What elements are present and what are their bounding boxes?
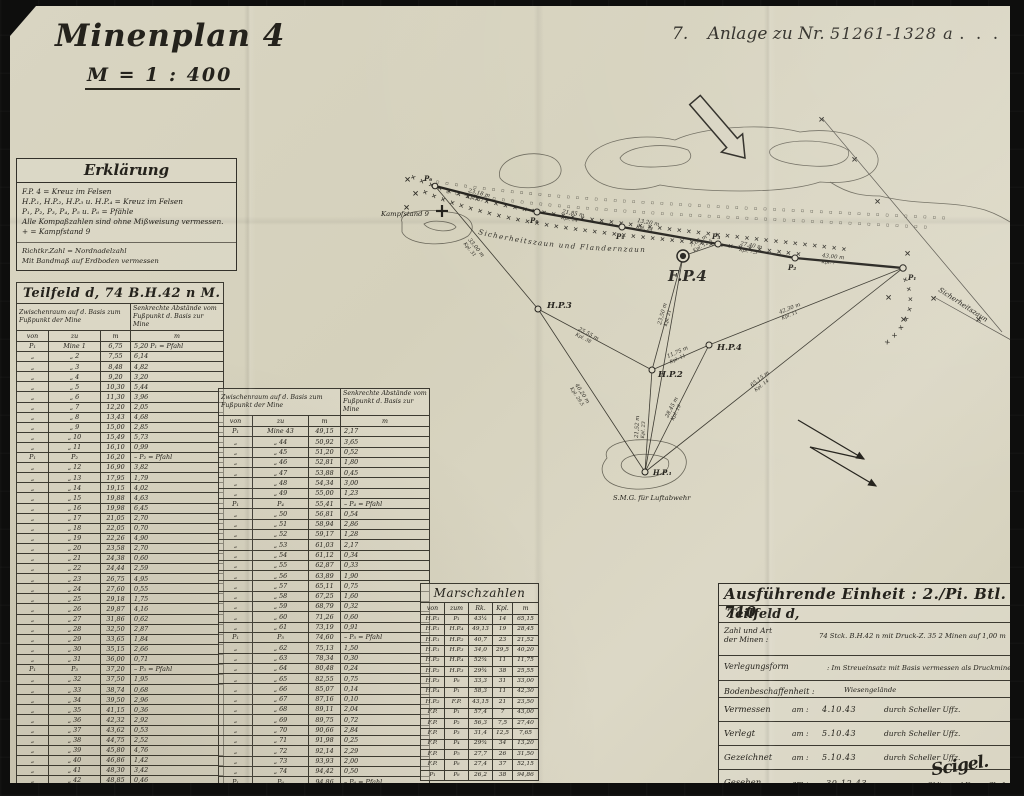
cell-dist: 29,87 xyxy=(101,604,131,614)
cell-von: F.P. xyxy=(421,750,445,760)
table-row: „ „ 5 10,30 5,44 xyxy=(17,382,224,392)
cell-von: „ xyxy=(219,725,253,735)
cell-von: H.P.₄ xyxy=(421,687,445,697)
cell-dist: 85,07 xyxy=(309,684,341,694)
table1-head-right: Senkrechte Abstände vom Fußpunkt d. Basi… xyxy=(131,304,224,331)
table-row: „ „ 19 22,26 4,90 xyxy=(17,533,224,543)
cell-dist: 93,93 xyxy=(309,756,341,766)
cell-zu: „ 20 xyxy=(49,543,101,553)
cell-rk: 43,15 xyxy=(469,698,493,708)
table-row: „ „ 59 68,79 0,32 xyxy=(219,602,430,612)
cell-dist: 22,26 xyxy=(101,533,131,543)
cell-von: P₁ xyxy=(219,777,253,783)
table-row: „ „ 67 87,16 0,10 xyxy=(219,694,430,704)
cell-m: 28,45 xyxy=(513,625,539,635)
col-m: m xyxy=(513,603,539,615)
legend-line: Alle Kompaßzahlen sind ohne Mißweisung v… xyxy=(22,217,232,227)
cell-dist: 19,88 xyxy=(101,493,131,503)
log-date: 4.10.43 xyxy=(822,705,884,714)
cell-dist: 37,20 xyxy=(101,665,131,675)
table-row: „ „ 16 19,98 6,45 xyxy=(17,503,224,513)
table-row: „ „ 35 41,15 0,36 xyxy=(17,705,224,715)
cell-m: 23,50 xyxy=(513,698,539,708)
cell-offset: 1,23 xyxy=(341,488,430,498)
cell-offset: 0,33 xyxy=(341,560,430,570)
cell-zum: H.P.₃ xyxy=(445,646,469,656)
cell-zu: „ 55 xyxy=(253,560,309,570)
table-row: „ „ 56 63,89 1,90 xyxy=(219,571,430,581)
table-row: „ „ 3 8,48 4,82 xyxy=(17,362,224,372)
map-scale: M = 1 : 400 xyxy=(85,64,240,90)
cell-dist: 43,62 xyxy=(101,725,131,735)
cell-offset: 2,00 xyxy=(341,756,430,766)
table-row: P₁ P₂ 16,20 – P₂ = Pfahl xyxy=(17,453,224,463)
log-am: am : xyxy=(792,753,822,762)
table-row: „ „ 58 67,25 1,60 xyxy=(219,591,430,601)
mine-table-2: Zwischenraum auf d. Basis zum Fußpunkt d… xyxy=(218,388,430,783)
cell-offset: 0,52 xyxy=(341,447,430,457)
cell-von: „ xyxy=(17,695,49,705)
mines-value: 74 Stck. B.H.42 n mit Druck-Z. 35 2 Mine… xyxy=(819,632,1006,640)
cell-offset: 1,79 xyxy=(131,473,224,483)
col-zum: zum xyxy=(445,603,469,615)
cell-zu: „ 15 xyxy=(49,493,101,503)
meas: 21,52 m xyxy=(634,416,641,440)
cell-dist: 44,75 xyxy=(101,735,131,745)
cell-dist: 51,20 xyxy=(309,447,341,457)
hp1-label: H.P.₁ xyxy=(652,468,672,477)
col-zu: zu xyxy=(49,331,101,342)
p4-label: P₄ xyxy=(615,232,624,241)
table-row: „ „ 7 12,20 2,05 xyxy=(17,402,224,412)
cell-von: „ xyxy=(17,584,49,594)
cell-zu: „ 26 xyxy=(49,604,101,614)
cell-zu: Mine 1 xyxy=(49,342,101,352)
log-am: am : xyxy=(792,705,822,714)
cell-m: 7,65 xyxy=(513,729,539,739)
cell-offset: 0,91 xyxy=(341,622,430,632)
cell-zum: H.P.₂ xyxy=(445,635,469,645)
cell-zum: P₁ xyxy=(445,615,469,625)
cell-zu: „ 14 xyxy=(49,483,101,493)
seen-row: Gesehen am : 30.12.43 Scigel. Obltn. und… xyxy=(719,770,1010,783)
cell-zu: „ 23 xyxy=(49,574,101,584)
table-row: „ „ 32 37,50 1,95 xyxy=(17,675,224,685)
cell-zu: „ 69 xyxy=(253,715,309,725)
cell-offset: 3,96 xyxy=(131,392,224,402)
cell-zu: „ 38 xyxy=(49,735,101,745)
cell-dist: 46,86 xyxy=(101,755,131,765)
cell-zu: „ 25 xyxy=(49,594,101,604)
table-row: „ „ 28 32,50 2,87 xyxy=(17,624,224,634)
cell-offset: 2,96 xyxy=(131,695,224,705)
log-date: 5.10.43 xyxy=(822,753,884,762)
cell-dist: 45,80 xyxy=(101,745,131,755)
cell-von: „ xyxy=(17,402,49,412)
cell-zu: „ 5 xyxy=(49,382,101,392)
fence-x: × xyxy=(874,197,881,207)
cell-von: „ xyxy=(219,591,253,601)
cell-rk: 33,3 xyxy=(469,677,493,687)
cell-von: „ xyxy=(219,705,253,715)
annex-label: Anlage zu Nr. xyxy=(708,24,825,44)
cell-dist: 61,03 xyxy=(309,540,341,550)
cell-m: 42,30 xyxy=(513,687,539,697)
cell-zum: P₆ xyxy=(445,770,469,780)
cell-dist: 78,34 xyxy=(309,653,341,663)
log-label: Vermessen xyxy=(724,705,792,715)
cell-von: „ xyxy=(17,513,49,523)
cell-zu: „ 40 xyxy=(49,755,101,765)
table-row: „ „ 65 82,55 0,75 xyxy=(219,674,430,684)
table2-head-left: Zwischenraum auf d. Basis zum Fußpunkt d… xyxy=(219,389,341,416)
cell-zu: „ 8 xyxy=(49,412,101,422)
fence-x: × xyxy=(900,315,907,325)
cell-zu: „ 22 xyxy=(49,564,101,574)
cell-kpl: 29,5 xyxy=(493,646,513,656)
cell-von: P₁ xyxy=(17,342,49,352)
cell-dist: 91,98 xyxy=(309,735,341,745)
form-value: : Im Streueinsatz mit Basis vermessen al… xyxy=(827,664,1010,672)
cell-rk: 57,4 xyxy=(469,708,493,718)
cell-zu: „ 67 xyxy=(253,694,309,704)
cell-zu: P₆ xyxy=(253,777,309,783)
table-row: „ „ 45 51,20 0,52 xyxy=(219,447,430,457)
cell-zu: „ 41 xyxy=(49,765,101,775)
fence-marks-south: ×××××××× xyxy=(879,276,914,350)
table-row: „ „ 61 73,19 0,91 xyxy=(219,622,430,632)
cell-offset: 3,65 xyxy=(341,437,430,447)
cell-offset: 0,55 xyxy=(131,584,224,594)
cell-offset: 1,84 xyxy=(131,634,224,644)
cell-zu: „ 37 xyxy=(49,725,101,735)
table-row: H.P.₃ P₆ 33,3 31 33,00 xyxy=(421,677,539,687)
cell-dist: 7,55 xyxy=(101,352,131,362)
cell-zu: „ 34 xyxy=(49,695,101,705)
cell-dist: 50,92 xyxy=(309,437,341,447)
cell-zum: F.P. xyxy=(445,698,469,708)
cell-m: 21,52 xyxy=(513,635,539,645)
cell-von: P₁ xyxy=(17,453,49,463)
cell-von: „ xyxy=(219,560,253,570)
cell-zum: P₁ xyxy=(445,687,469,697)
cell-von: H.P.₃ xyxy=(421,677,445,687)
cell-zu: „ 54 xyxy=(253,550,309,560)
cell-offset: 1,80 xyxy=(341,457,430,467)
cell-offset: 1,90 xyxy=(341,571,430,581)
cell-m: 27,40 xyxy=(513,718,539,728)
fp4-label: F.P.4 xyxy=(667,267,707,285)
table-row: „ „ 11 16,10 0,99 xyxy=(17,442,224,452)
col-von: von xyxy=(17,331,49,342)
cell-offset: 4,95 xyxy=(131,574,224,584)
table-row: H.P.₁ H.P.₂ 40,7 23 21,52 xyxy=(421,635,539,645)
table-row: P₁ P₆ 26,2 38 94,86 xyxy=(421,770,539,780)
cell-von: „ xyxy=(219,674,253,684)
table2-head-right: Senkrechte Abstände vom Fußpunkt d. Basi… xyxy=(341,389,430,416)
cell-zum: P₁ xyxy=(445,708,469,718)
cell-kpl: 38 xyxy=(493,770,513,780)
cell-dist: 32,50 xyxy=(101,624,131,634)
table-row: „ „ 10 15,49 5,73 xyxy=(17,432,224,442)
cell-dist: 16,20 xyxy=(101,453,131,463)
cell-zu: „ 56 xyxy=(253,571,309,581)
cell-von: „ xyxy=(17,634,49,644)
cell-dist: 6,75 xyxy=(101,342,131,352)
table-row: F.P. P₆ 27,4 37 52,15 xyxy=(421,760,539,770)
cell-von: H.P.₁ xyxy=(421,615,445,625)
table-row: „ „ 55 62,87 0,33 xyxy=(219,560,430,570)
table-row: „ „ 27 31,86 0,62 xyxy=(17,614,224,624)
table-row: „ „ 47 53,88 0,45 xyxy=(219,468,430,478)
cell-zu: „ 11 xyxy=(49,442,101,452)
annex-value: 51261-1328 a xyxy=(830,24,954,43)
table-row: „ „ 8 13,43 4,68 xyxy=(17,412,224,422)
cell-m: 25,55 xyxy=(513,666,539,676)
table-row: „ „ 62 75,13 1,50 xyxy=(219,643,430,653)
cell-von: „ xyxy=(219,488,253,498)
cell-dist: 16,90 xyxy=(101,463,131,473)
table-row: „ „ 74 94,42 0,50 xyxy=(219,766,430,776)
cell-offset: 0,72 xyxy=(341,715,430,725)
cell-von: „ xyxy=(17,533,49,543)
cell-dist: 11,30 xyxy=(101,392,131,402)
cell-offset: 0,24 xyxy=(341,663,430,673)
log-row: Vermessen am : 4.10.43 durch Scheller Uf… xyxy=(719,698,1010,722)
table-row: „ „ 38 44,75 2,52 xyxy=(17,735,224,745)
cell-zu: „ 6 xyxy=(49,392,101,402)
cell-dist: 37,50 xyxy=(101,675,131,685)
cell-kpl: 11 xyxy=(493,656,513,666)
cell-von: H.P.₂ xyxy=(421,666,445,676)
cell-von: „ xyxy=(219,571,253,581)
cell-von: „ xyxy=(17,725,49,735)
table-row: P₁ Mine 43 49,15 2,17 xyxy=(219,427,430,437)
cell-zu: „ 39 xyxy=(49,745,101,755)
cell-kpl: 26 xyxy=(493,750,513,760)
cell-von: „ xyxy=(219,478,253,488)
cell-offset: 0,60 xyxy=(341,612,430,622)
cell-dist: 29,18 xyxy=(101,594,131,604)
cell-von: „ xyxy=(219,509,253,519)
mine-table-1: Teilfeld d, 74 B.H.42 n M. Zwischenraum … xyxy=(16,282,224,783)
form-row: Verlegungsform : Im Streueinsatz mit Bas… xyxy=(719,656,1010,681)
cell-zum: P₂ xyxy=(445,718,469,728)
cell-von: „ xyxy=(17,776,49,783)
cell-offset: – P₃ = Pfahl xyxy=(131,665,224,675)
cell-offset: 2,59 xyxy=(131,564,224,574)
table-row: „ „ 52 59,17 1,28 xyxy=(219,529,430,539)
cell-von: „ xyxy=(219,622,253,632)
cell-dist: 27,60 xyxy=(101,584,131,594)
table-row: „ „ 14 19,15 4,02 xyxy=(17,483,224,493)
cell-von: „ xyxy=(219,653,253,663)
table-row: „ „ 40 46,86 1,42 xyxy=(17,755,224,765)
cell-von: H.P.₁ xyxy=(421,625,445,635)
smg-label: S.M.G. für Luftabwehr xyxy=(613,494,691,502)
cell-offset: 1,95 xyxy=(131,675,224,685)
cell-dist: 55,00 xyxy=(309,488,341,498)
cell-von: „ xyxy=(17,463,49,473)
cell-rk: 58,3 xyxy=(469,687,493,697)
cell-zu: „ 28 xyxy=(49,624,101,634)
cell-zum: P₄ xyxy=(445,739,469,749)
cell-offset: – P₅ = Pfahl xyxy=(341,632,430,642)
cell-zu: „ 65 xyxy=(253,674,309,684)
table-row: „ „ 57 65,11 0,75 xyxy=(219,581,430,591)
cell-dist: 19,98 xyxy=(101,503,131,513)
cell-von: „ xyxy=(17,483,49,493)
cell-dist: 17,95 xyxy=(101,473,131,483)
cell-von: „ xyxy=(17,432,49,442)
p5-label: P₅ xyxy=(529,216,538,225)
cell-offset: 3,42 xyxy=(131,765,224,775)
cell-rk: 27,4 xyxy=(469,760,493,770)
cell-dist: 90,66 xyxy=(309,725,341,735)
hp2-label: H.P.2 xyxy=(657,370,683,380)
cell-von: „ xyxy=(17,523,49,533)
cell-dist: 74,60 xyxy=(309,632,341,642)
cell-zu: „ 58 xyxy=(253,591,309,601)
cell-dist: 15,49 xyxy=(101,432,131,442)
cell-von: „ xyxy=(17,644,49,654)
cell-zu: „ 66 xyxy=(253,684,309,694)
cell-dist: 12,20 xyxy=(101,402,131,412)
cell-dist: 24,44 xyxy=(101,564,131,574)
cell-zum: P₃ xyxy=(445,729,469,739)
cell-dist: 41,15 xyxy=(101,705,131,715)
cell-dist: 15,00 xyxy=(101,422,131,432)
table-row: „ „ 26 29,87 4,16 xyxy=(17,604,224,614)
cell-zu: Mine 43 xyxy=(253,427,309,437)
cell-von: P₁ xyxy=(17,665,49,675)
direction-arrow xyxy=(690,95,745,158)
table-row: P₁ P₄ 55,41 – P₄ = Pfahl xyxy=(219,499,430,509)
cell-m: 43,00 xyxy=(513,708,539,718)
cell-zu: „ 9 xyxy=(49,422,101,432)
col-m: m xyxy=(309,416,341,427)
fence-x: × xyxy=(818,115,825,125)
table-row: H.P.₁ P₁ 43¼ 14 65,15 xyxy=(421,615,539,625)
cell-von: „ xyxy=(17,564,49,574)
cell-zu: „ 12 xyxy=(49,463,101,473)
cell-dist: 53,88 xyxy=(309,468,341,478)
cell-offset: – P₂ = Pfahl xyxy=(131,453,224,463)
hp4-label: H.P.4 xyxy=(716,343,742,353)
cell-zum: P₆ xyxy=(445,677,469,687)
fence-x: × xyxy=(412,189,419,199)
cell-dist: 38,74 xyxy=(101,685,131,695)
cell-offset: 5,44 xyxy=(131,382,224,392)
cell-dist: 36,00 xyxy=(101,654,131,664)
kampfstand-label: Kampfstand 9 xyxy=(380,210,430,218)
unit-info-panel: Ausführende Einheit : 2./Pi. Btl. 710 Te… xyxy=(718,583,1010,783)
table-row: „ „ 39 45,80 4,76 xyxy=(17,745,224,755)
cell-offset: 0,36 xyxy=(131,705,224,715)
cell-dist: 58,94 xyxy=(309,519,341,529)
cell-m: 33,00 xyxy=(513,677,539,687)
cell-zu: „ 57 xyxy=(253,581,309,591)
cell-offset: 1,28 xyxy=(341,529,430,539)
terrain-contours xyxy=(402,127,1010,489)
cell-zu: „ 48 xyxy=(253,478,309,488)
table-row: „ „ 18 22,05 0,70 xyxy=(17,523,224,533)
cell-von: „ xyxy=(219,581,253,591)
table-row: F.P. P₂ 56,3 7,5 27,40 xyxy=(421,718,539,728)
cell-dist: 33,65 xyxy=(101,634,131,644)
cell-offset: 1,42 xyxy=(131,755,224,765)
cell-offset: 0,34 xyxy=(341,550,430,560)
cell-zu: „ 64 xyxy=(253,663,309,673)
cell-zu: „ 16 xyxy=(49,503,101,513)
cell-offset: 3,00 xyxy=(341,478,430,488)
cell-dist: 19,15 xyxy=(101,483,131,493)
table-row: „ „ 42 48,85 0,46 xyxy=(17,776,224,783)
table-row: „ „ 69 89,75 0,72 xyxy=(219,715,430,725)
cell-offset: 4,82 xyxy=(131,362,224,372)
cell-offset: 3,82 xyxy=(131,463,224,473)
cell-offset: 6,14 xyxy=(131,352,224,362)
table-row: „ „ 64 80,48 0,24 xyxy=(219,663,430,673)
table-row: „ „ 22 24,44 2,59 xyxy=(17,564,224,574)
cell-m: 94,86 xyxy=(513,770,539,780)
cell-zu: „ 35 xyxy=(49,705,101,715)
table-row: „ „ 9 15,00 2,85 xyxy=(17,422,224,432)
cell-von: F.P. xyxy=(421,729,445,739)
cell-von: „ xyxy=(219,694,253,704)
legend-lines: F.P. 4 = Kreuz im FelsenH.P.₁, H.P.₂, H.… xyxy=(17,183,236,239)
cell-zu: „ 68 xyxy=(253,705,309,715)
cell-dist: 55,41 xyxy=(309,499,341,509)
table-row: F.P. P₄ 29¾ 34 13,20 xyxy=(421,739,539,749)
cell-kpl: 31 xyxy=(493,677,513,687)
cell-von: „ xyxy=(17,372,49,382)
cell-zu: „ 62 xyxy=(253,643,309,653)
cell-rk: 40,7 xyxy=(469,635,493,645)
cell-offset: 2,05 xyxy=(131,402,224,412)
cell-rk: 29¾ xyxy=(469,739,493,749)
cell-offset: 2,84 xyxy=(341,725,430,735)
cell-zu: P₅ xyxy=(253,632,309,642)
table-row: „ „ 31 36,00 0,71 xyxy=(17,654,224,664)
cell-von: „ xyxy=(219,684,253,694)
cell-kpl: 34 xyxy=(493,739,513,749)
cell-offset: 4,90 xyxy=(131,533,224,543)
cell-m: 52,15 xyxy=(513,760,539,770)
col-rk: Rk. xyxy=(469,603,493,615)
document-paper: Minenplan 4 M = 1 : 400 7. Anlage zu Nr.… xyxy=(10,6,1010,783)
cell-von: H.P.₂ xyxy=(421,656,445,666)
cell-von: „ xyxy=(17,473,49,483)
cell-dist: 63,89 xyxy=(309,571,341,581)
table-row: „ „ 50 56,81 0,54 xyxy=(219,509,430,519)
table-row: „ „ 15 19,88 4,63 xyxy=(17,493,224,503)
cell-zu: „ 70 xyxy=(253,725,309,735)
cell-zu: „ 30 xyxy=(49,644,101,654)
cell-von: „ xyxy=(17,745,49,755)
cell-offset: 1,50 xyxy=(341,643,430,653)
table-row: P₁ P₅ 74,60 – P₅ = Pfahl xyxy=(219,632,430,642)
cell-offset: 5,20 P₁ = Pfahl xyxy=(131,342,224,352)
cell-zu: „ 31 xyxy=(49,654,101,664)
cell-von: P₁ xyxy=(219,632,253,642)
legend-line: H.P.₁, H.P.₂, H.P.₃ u. H.P.₄ = Kreuz im … xyxy=(22,197,232,207)
cell-offset: 2,86 xyxy=(341,519,430,529)
cell-zu: „ 52 xyxy=(253,529,309,539)
table-row: H.P.₁ H.P.₄ 49,13 19 28,45 xyxy=(421,625,539,635)
cell-dist: 89,11 xyxy=(309,705,341,715)
cell-zu: „ 61 xyxy=(253,622,309,632)
